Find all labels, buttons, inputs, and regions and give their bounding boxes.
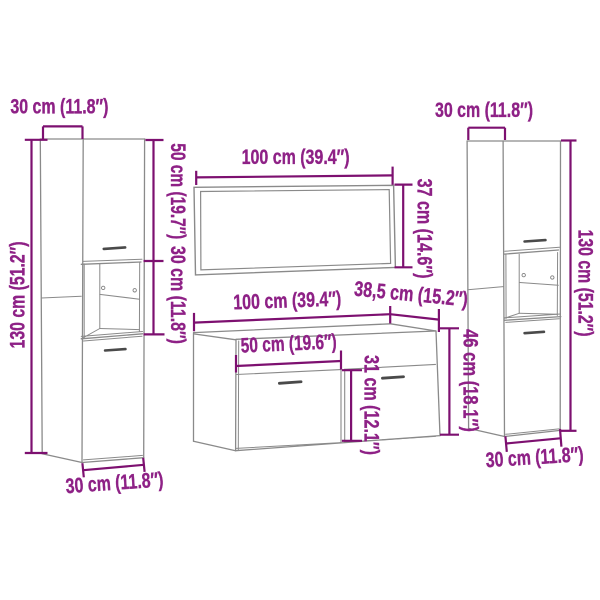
svg-text:30 cm (11.8″): 30 cm (11.8″) [435,98,533,122]
svg-text:30 cm (11.8″): 30 cm (11.8″) [10,94,108,118]
svg-text:37 cm (14.6″): 37 cm (14.6″) [413,179,437,279]
svg-text:100 cm (39.4″): 100 cm (39.4″) [233,286,342,313]
svg-text:50 cm (19.7″): 50 cm (19.7″) [166,143,190,239]
svg-text:30 cm (11.8″): 30 cm (11.8″) [166,246,190,344]
svg-text:100 cm (39.4″): 100 cm (39.4″) [242,145,350,169]
svg-text:31 cm (12.1″): 31 cm (12.1″) [360,355,384,455]
svg-text:130 cm (51.2″): 130 cm (51.2″) [5,242,29,349]
svg-text:50 cm (19.6″): 50 cm (19.6″) [240,329,337,357]
svg-text:46 cm (18.1″): 46 cm (18.1″) [458,329,481,432]
svg-text:130 cm (51.2″): 130 cm (51.2″) [574,230,598,337]
